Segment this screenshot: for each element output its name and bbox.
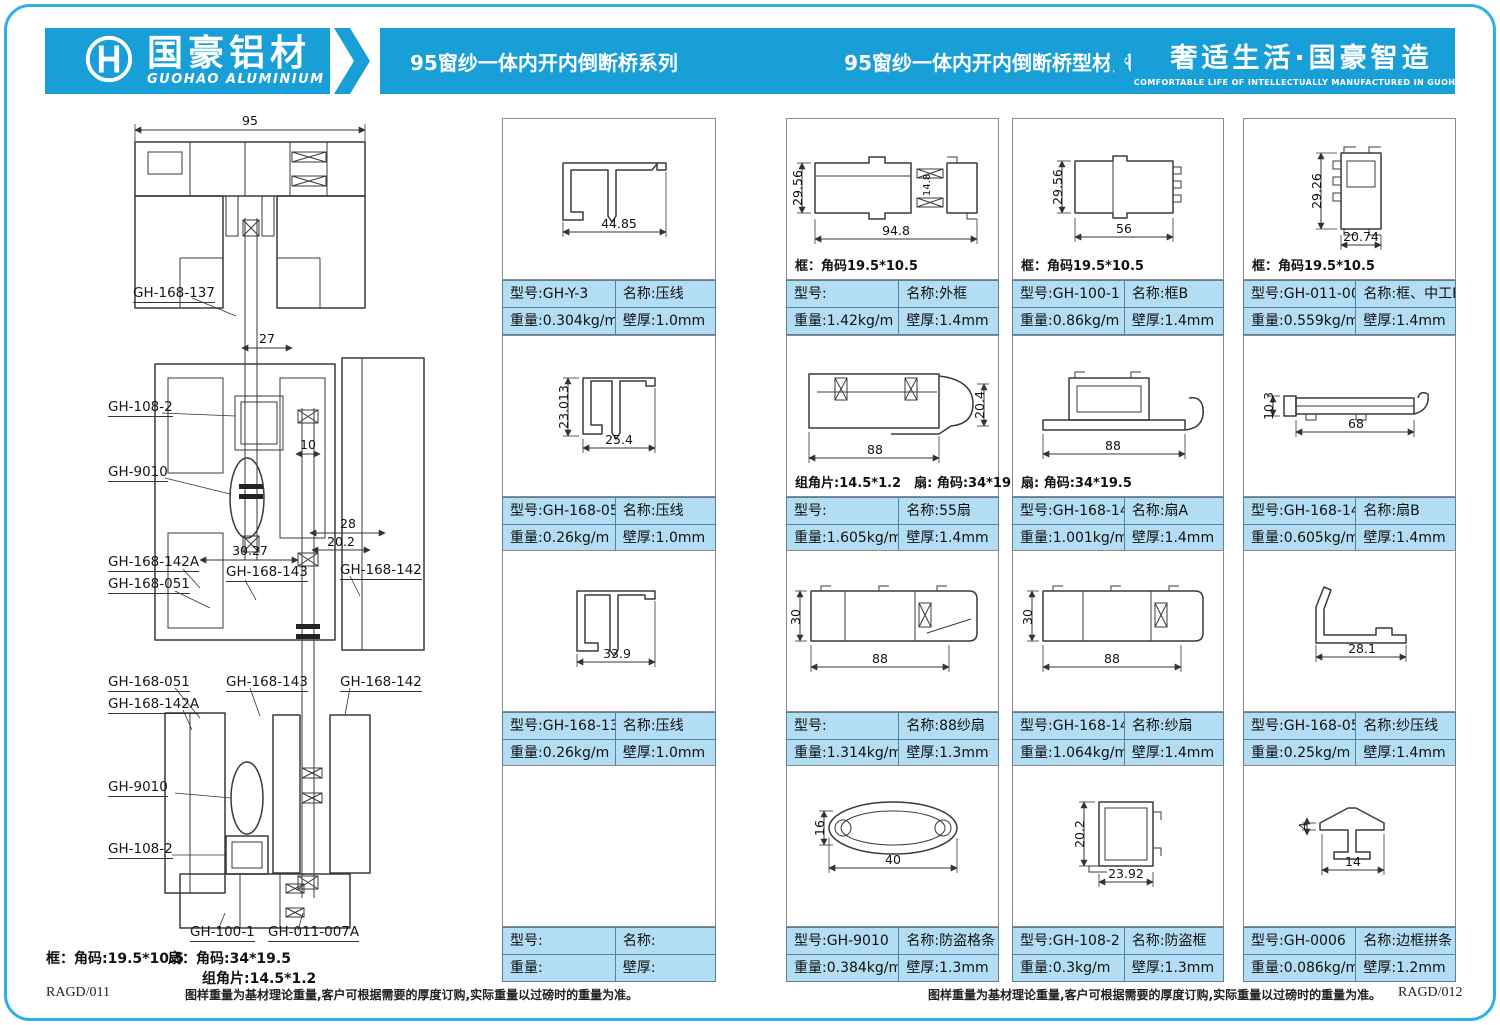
profile-card-gh-9010: 16 40 型号:GH-9010 名称:防盗格条 重量:0.384kg/m 壁厚… [786,765,999,982]
weight-cell: 重量: [503,955,616,982]
page-number-left: RAGD/011 [46,985,110,1001]
model-cell: 型号:GH-168-142A [1013,713,1125,740]
profile-sketch: 28.1 [1244,551,1455,711]
thickness-cell: 壁厚:1.4mm [1356,308,1456,335]
weight-cell: 重量:0.86kg/m [1013,308,1125,335]
svg-text:29.56: 29.56 [790,170,805,206]
weight-cell: 重量:1.001kg/m [1013,525,1125,552]
profile-drawing: 20.2 23.92 [1012,765,1224,927]
profile-drawing: 10.3 68 [1243,335,1456,497]
name-cell: 名称:压线 [616,713,716,740]
model-cell: 型号:GH-100-1 [1013,281,1125,308]
model-cell: 型号: [787,281,899,308]
spec-table: 型号: 名称: 重量: 壁厚: [502,927,716,982]
name-cell: 名称:扇A [1125,498,1224,525]
profile-sketch: 30 88 [1013,551,1223,711]
profile-drawing: 16 40 [786,765,999,927]
thickness-cell: 壁厚:1.4mm [899,308,999,335]
weight-cell: 重量:0.605kg/m [1244,525,1356,552]
part-label: GH-168-143 [226,675,308,692]
weight-cell: 重量:0.559kg/m [1244,308,1356,335]
profile-drawing: 23.013 25.4 [502,335,716,497]
header-slogan-block: 奢适生活·国豪智造 COMFORTABLE LIFE OF INTELLECTU… [1148,28,1455,94]
model-cell: 型号:GH-168-142 [1013,498,1125,525]
weight-cell: 重量:1.314kg/m [787,740,899,767]
thickness-cell: 壁厚:1.4mm [1356,525,1456,552]
diagram-title: 95窗纱一体内开内倒断桥型材图 [844,47,1132,76]
thickness-cell: 壁厚:1.2mm [1356,955,1456,982]
part-label: GH-168-142 [340,675,422,692]
series-title: 95窗纱一体内开内倒断桥系列 [410,47,678,76]
part-label: GH-9010 [108,780,168,797]
weight-cell: 重量:0.304kg/m [503,308,616,335]
svg-text:88: 88 [867,442,883,457]
thickness-cell: 壁厚:1.0mm [616,308,716,335]
spec-table: 型号:GH-Y-3 名称:压线 重量:0.304kg/m 壁厚:1.0mm [502,280,716,335]
header-title-bar: 95窗纱一体内开内倒断桥系列 95窗纱一体内开内倒断桥型材图 [380,28,1158,94]
svg-text:14.8: 14.8 [922,174,933,196]
name-cell: 名称:88纱扇 [899,713,999,740]
part-label: GH-108-2 [108,842,173,859]
spec-table: 型号: 名称:55扇 重量:1.605kg/m 壁厚:1.4mm [786,497,999,552]
part-label: GH-9010 [108,465,168,482]
thickness-cell: 壁厚:1.0mm [616,525,716,552]
name-cell: 名称:纱扇 [1125,713,1224,740]
profile-sketch: 20.2 23.92 [1013,766,1223,926]
spec-table: 型号:GH-168-055 名称:压线 重量:0.26kg/m 壁厚:1.0mm [502,497,716,552]
thickness-cell: 壁厚:1.3mm [899,955,999,982]
profile-card-gh-168-055: 23.013 25.4 型号:GH-168-055 名称:压线 重量:0.26k… [502,335,716,552]
footer-note-right: 图样重量为基材理论重量,客户可根据需要的厚度订购,实际重量以过磅时的重量为准。 [928,986,1381,1003]
svg-text:16: 16 [812,820,827,836]
thickness-cell: 壁厚: [616,955,716,982]
profile-sketch: 44.85 [503,119,715,279]
svg-text:20.74: 20.74 [1343,229,1379,244]
card-note: 框：角码19.5*10.5 [1252,255,1375,274]
profile-sketch: 23.013 25.4 [503,336,715,496]
part-label: GH-168-143 [226,565,308,582]
spec-table: 型号:GH-168-143 名称:扇B 重量:0.605kg/m 壁厚:1.4m… [1243,497,1456,552]
profile-card-empty: 型号: 名称: 重量: 壁厚: [502,765,716,982]
spec-table: 型号:GH-0006 名称:边框拼条 重量:0.086kg/m 壁厚:1.2mm [1243,927,1456,982]
dim-27: 27 [259,331,275,346]
card-note: 框：角码19.5*10.5 [795,255,918,274]
profile-card-gh-168-143: 10.3 68 型号:GH-168-143 名称:扇B 重量:0.605kg/m… [1243,335,1456,552]
svg-text:25.4: 25.4 [605,432,633,447]
spec-table: 型号:GH-168-051 名称:纱压线 重量:0.25kg/m 壁厚:1.4m… [1243,712,1456,767]
svg-text:4: 4 [1297,823,1310,830]
footer-note-left: 图样重量为基材理论重量,客户可根据需要的厚度订购,实际重量以过磅时的重量为准。 [185,986,638,1003]
part-label: GH-100-1 [190,925,255,942]
part-label: GH-168-142A [108,697,199,714]
profile-drawing: 28.1 [1243,550,1456,712]
profile-sketch: 33.9 [503,551,715,711]
assembly-section-sketch: 95 27 1 [40,108,500,953]
weight-cell: 重量:0.3kg/m [1013,955,1125,982]
name-cell: 名称:防盗格条 [899,928,999,955]
svg-text:14: 14 [1345,854,1361,869]
model-cell: 型号: [787,498,899,525]
name-cell: 名称:扇B [1356,498,1456,525]
part-label: GH-168-137 [133,286,215,303]
name-cell: 名称:框B [1125,281,1224,308]
dim-28: 28 [340,516,356,531]
dim-10: 10 [300,437,316,452]
svg-text:94.8: 94.8 [882,223,910,238]
spec-table: 型号: 名称:88纱扇 重量:1.314kg/m 壁厚:1.3mm [786,712,999,767]
guohao-logo-icon [83,33,135,89]
corner-note-sash: 扇：角码:34*19.5 [168,948,291,968]
thickness-cell: 壁厚:1.3mm [899,740,999,767]
thickness-cell: 壁厚:1.4mm [1356,740,1456,767]
weight-cell: 重量:0.086kg/m [1244,955,1356,982]
profile-sketch: 16 40 [787,766,998,926]
model-cell: 型号:GH-011-007A [1244,281,1356,308]
profile-drawing: 20.4 88 组角片:14.5*1.2 扇: 角码:34*19.5 [786,335,999,497]
card-note: 框：角码19.5*10.5 [1021,255,1144,274]
svg-text:29.56: 29.56 [1050,169,1065,205]
part-label: GH-168-142 [340,563,422,580]
profile-sketch: 10.3 68 [1244,336,1455,496]
model-cell: 型号:GH-168-143 [1244,498,1356,525]
weight-cell: 重量:1.42kg/m [787,308,899,335]
profile-drawing: 44.85 [502,118,716,280]
profile-drawing: 88 扇: 角码:34*19.5 [1012,335,1224,497]
model-cell: 型号:GH-Y-3 [503,281,616,308]
profile-card-gh-011-007a: 29.26 20.74 框：角码19.5*10.5 型号:GH-011-007A… [1243,118,1456,335]
svg-text:44.85: 44.85 [601,216,637,231]
model-cell: 型号:GH-108-2 [1013,928,1125,955]
profile-card-gh-168-142a: 30 88 型号:GH-168-142A 名称:纱扇 重量:1.064kg/m … [1012,550,1224,767]
weight-cell: 重量:0.26kg/m [503,740,616,767]
name-cell: 名称:防盗框 [1125,928,1224,955]
svg-text:20.2: 20.2 [1072,820,1087,848]
weight-cell: 重量:0.25kg/m [1244,740,1356,767]
weight-cell: 重量:1.605kg/m [787,525,899,552]
profile-card-gh-0006: 4 14 型号:GH-0006 名称:边框拼条 重量:0.086kg/m 壁厚:… [1243,765,1456,982]
corner-note-frame: 框：角码:19.5*10.5 [46,948,184,968]
svg-text:56: 56 [1116,221,1132,236]
svg-text:20.4: 20.4 [972,391,987,419]
dim-30-27: 30.27 [232,543,268,558]
header-logo-block: 国豪铝材 GUOHAO ALUMINIUM [45,28,330,94]
name-cell: 名称:压线 [616,281,716,308]
profile-drawing: 4 14 [1243,765,1456,927]
spec-table: 型号:GH-108-2 名称:防盗框 重量:0.3kg/m 壁厚:1.3mm [1012,927,1224,982]
profile-card-gh-108-2: 20.2 23.92 型号:GH-108-2 名称:防盗框 重量:0.3kg/m… [1012,765,1224,982]
model-cell: 型号:GH-9010 [787,928,899,955]
name-cell: 名称:框、中工B [1356,281,1456,308]
weight-cell: 重量:1.064kg/m [1013,740,1125,767]
name-cell: 名称:压线 [616,498,716,525]
spec-table: 型号:GH-168-142 名称:扇A 重量:1.001kg/m 壁厚:1.4m… [1012,497,1224,552]
profile-card-gh-100-1: 29.56 56 框：角码19.5*10.5 型号:GH-100-1 名称:框B… [1012,118,1224,335]
model-cell: 型号:GH-168-051 [1244,713,1356,740]
thickness-cell: 壁厚:1.4mm [899,525,999,552]
svg-text:23.013: 23.013 [556,385,571,429]
spec-table: 型号: 名称:外框 重量:1.42kg/m 壁厚:1.4mm [786,280,999,335]
svg-text:88: 88 [872,651,888,666]
profile-drawing: 29.56 56 框：角码19.5*10.5 [1012,118,1224,280]
model-cell: 型号: [503,928,616,955]
svg-text:23.92: 23.92 [1108,866,1144,881]
weight-cell: 重量:0.26kg/m [503,525,616,552]
catalog-page: 国豪铝材 GUOHAO ALUMINIUM 95窗纱一体内开内倒断桥系列 95窗… [0,0,1500,1025]
svg-text:30: 30 [788,609,803,625]
card-note: 组角片:14.5*1.2 扇: 角码:34*19.5 [795,472,1025,491]
profile-sketch: 4 14 [1244,766,1455,926]
part-label: GH-108-2 [108,400,173,417]
svg-text:68: 68 [1348,416,1364,431]
spec-table: 型号:GH-168-137 名称:压线 重量:0.26kg/m 壁厚:1.0mm [502,712,716,767]
part-label: GH-011-007A [268,925,359,942]
spec-table: 型号:GH-9010 名称:防盗格条 重量:0.384kg/m 壁厚:1.3mm [786,927,999,982]
part-label: GH-168-051 [108,577,190,594]
logo-text-cn: 国豪铝材 [147,36,325,72]
profile-drawing: 33.9 [502,550,716,712]
slogan-cn: 奢适生活·国豪智造 [1170,36,1432,75]
name-cell: 名称:55扇 [899,498,999,525]
svg-text:88: 88 [1105,438,1121,453]
profile-card-88shashan: 30 88 型号: 名称:88纱扇 重量:1.314kg/m 壁厚:1.3mm [786,550,999,767]
model-cell: 型号:GH-0006 [1244,928,1356,955]
profile-card-55shan: 20.4 88 组角片:14.5*1.2 扇: 角码:34*19.5 型号: 名… [786,335,999,552]
profile-card-gh-168-051: 28.1 型号:GH-168-051 名称:纱压线 重量:0.25kg/m 壁厚… [1243,550,1456,767]
name-cell: 名称:外框 [899,281,999,308]
part-label: GH-168-142A [108,555,199,572]
header-chevron-right-icon [334,28,372,94]
name-cell: 名称: [616,928,716,955]
profile-drawing [502,765,716,927]
model-cell: 型号: [787,713,899,740]
thickness-cell: 壁厚:1.3mm [1125,955,1224,982]
svg-text:33.9: 33.9 [603,646,631,661]
dim-20-2: 20.2 [327,534,355,549]
name-cell: 名称:边框拼条 [1356,928,1456,955]
profile-card-gh-y-3: 44.85 型号:GH-Y-3 名称:压线 重量:0.304kg/m 壁厚:1.… [502,118,716,335]
corner-note-piece: 组角片:14.5*1.2 [202,968,316,988]
svg-text:88: 88 [1104,651,1120,666]
profile-sketch: 30 88 [787,551,998,711]
spec-table: 型号:GH-100-1 名称:框B 重量:0.86kg/m 壁厚:1.4mm [1012,280,1224,335]
profile-card-gh-168-142: 88 扇: 角码:34*19.5 型号:GH-168-142 名称:扇A 重量:… [1012,335,1224,552]
thickness-cell: 壁厚:1.4mm [1125,308,1224,335]
svg-text:40: 40 [885,852,901,867]
spec-table: 型号:GH-168-142A 名称:纱扇 重量:1.064kg/m 壁厚:1.4… [1012,712,1224,767]
thickness-cell: 壁厚:1.0mm [616,740,716,767]
profile-card-gh-168-137: 33.9 型号:GH-168-137 名称:压线 重量:0.26kg/m 壁厚:… [502,550,716,767]
name-cell: 名称:纱压线 [1356,713,1456,740]
thickness-cell: 壁厚:1.4mm [1125,525,1224,552]
model-cell: 型号:GH-168-137 [503,713,616,740]
svg-text:10.3: 10.3 [1261,392,1276,420]
part-label: GH-168-051 [108,675,190,692]
profile-drawing: 30 88 [1012,550,1224,712]
card-note: 扇: 角码:34*19.5 [1021,472,1132,491]
svg-text:29.26: 29.26 [1309,173,1324,209]
profile-card-waikuang: 29.56 94.8 14.8 框：角码19.5*10.5 型号: 名称:外框 … [786,118,999,335]
logo-text-en: GUOHAO ALUMINIUM [147,72,325,87]
profile-drawing: 29.56 94.8 14.8 框：角码19.5*10.5 [786,118,999,280]
model-cell: 型号:GH-168-055 [503,498,616,525]
dim-95: 95 [242,113,258,128]
svg-text:28.1: 28.1 [1348,641,1376,656]
thickness-cell: 壁厚:1.4mm [1125,740,1224,767]
slogan-en: COMFORTABLE LIFE OF INTELLECTUALLY MANUF… [1134,78,1469,87]
weight-cell: 重量:0.384kg/m [787,955,899,982]
spec-table: 型号:GH-011-007A 名称:框、中工B 重量:0.559kg/m 壁厚:… [1243,280,1456,335]
profile-drawing: 29.26 20.74 框：角码19.5*10.5 [1243,118,1456,280]
page-number-right: RAGD/012 [1398,985,1463,1001]
svg-text:30: 30 [1020,609,1035,625]
profile-drawing: 30 88 [786,550,999,712]
